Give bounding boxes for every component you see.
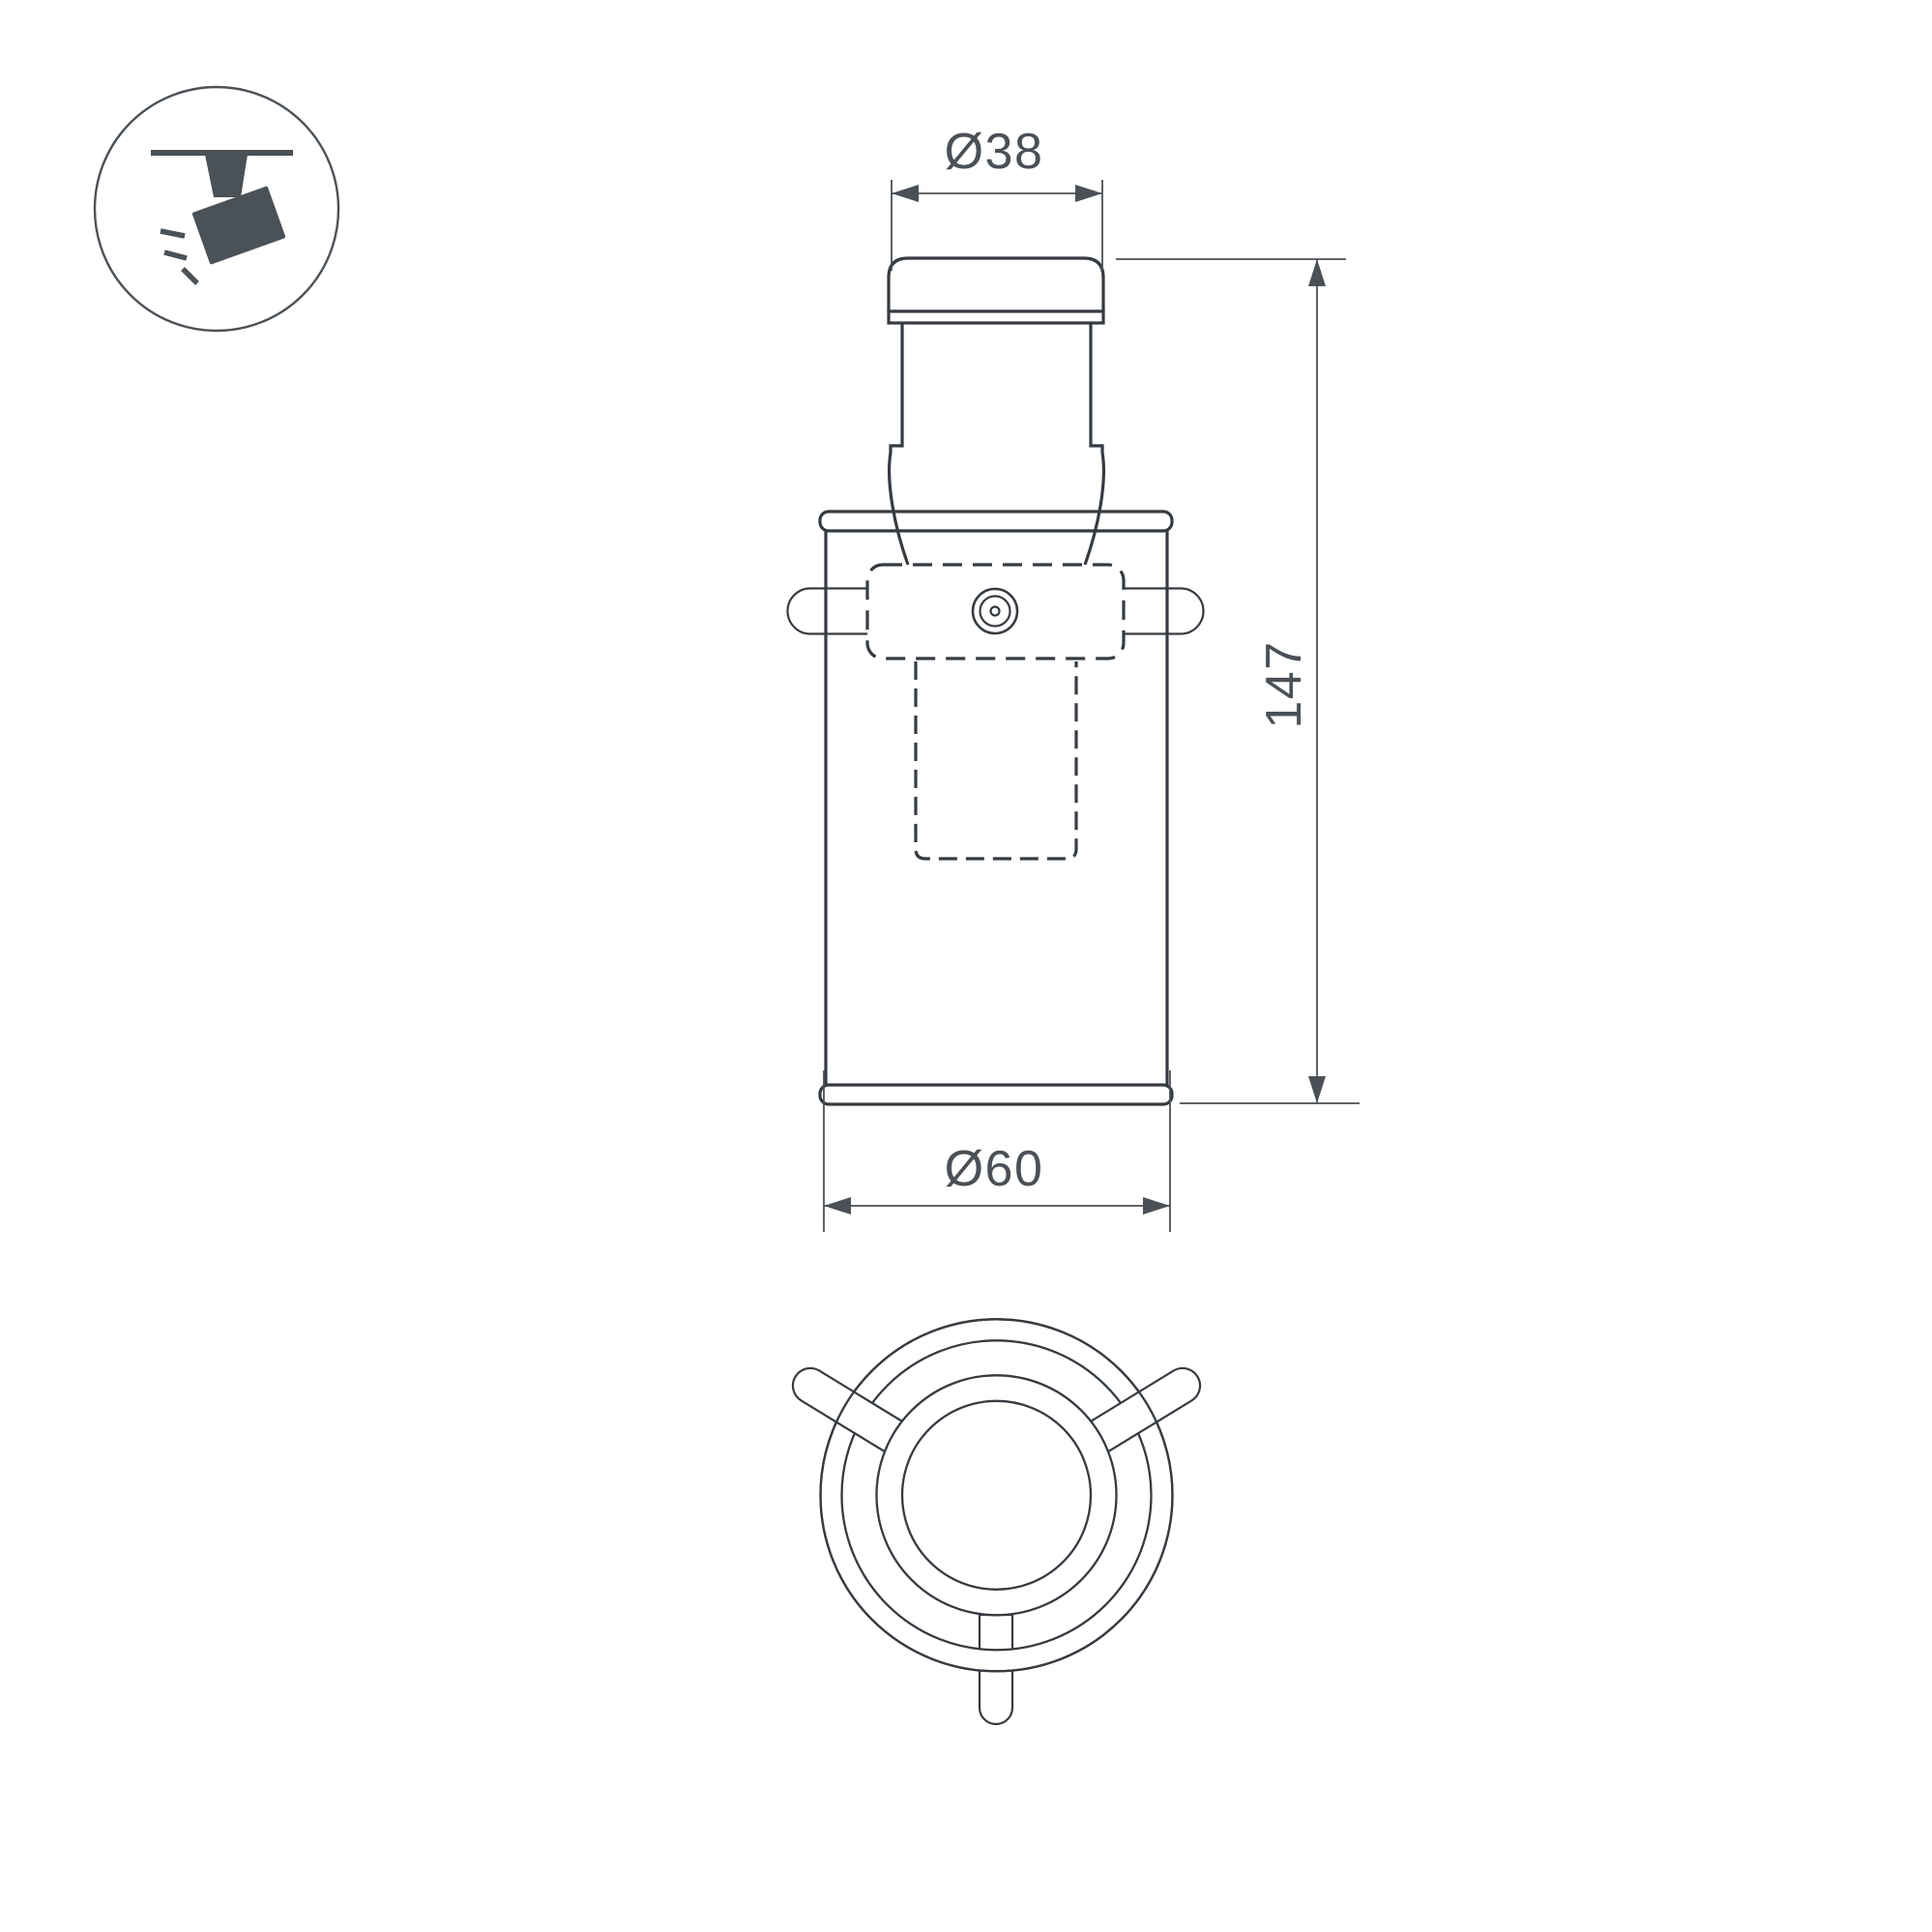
- adapter-cap: [889, 258, 1103, 311]
- dim-label-top-diameter: Ø38: [945, 124, 1044, 180]
- dim-label-bottom-diameter: Ø60: [945, 1141, 1044, 1197]
- bottom-rim: [820, 1085, 1172, 1104]
- technical-drawing: Ø38 147 Ø60: [0, 0, 1932, 1932]
- housing-circle: [877, 1375, 1117, 1615]
- drawing-canvas: Ø38 147 Ø60: [0, 0, 1932, 1932]
- clamp-dashed-outline: [867, 565, 1124, 659]
- dim-label-height: 147: [1256, 640, 1312, 728]
- adapter-cap-band: [889, 311, 1103, 323]
